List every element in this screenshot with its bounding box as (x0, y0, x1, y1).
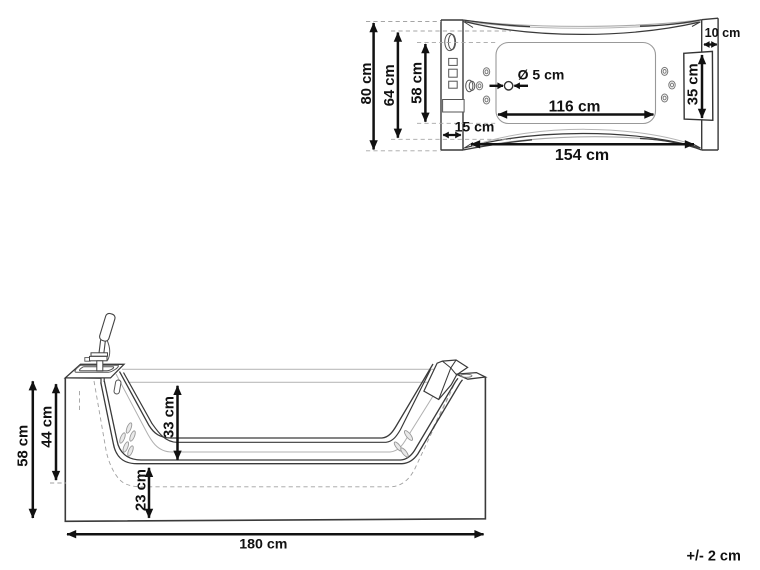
svg-text:44 cm: 44 cm (40, 406, 56, 448)
svg-text:33 cm: 33 cm (162, 396, 178, 438)
svg-text:35 cm: 35 cm (686, 63, 702, 105)
svg-text:154 cm: 154 cm (555, 147, 609, 164)
svg-text:180 cm: 180 cm (239, 537, 287, 553)
svg-text:23 cm: 23 cm (133, 469, 149, 511)
svg-text:64 cm: 64 cm (382, 64, 398, 106)
svg-text:58 cm: 58 cm (15, 425, 31, 467)
svg-text:80 cm: 80 cm (359, 63, 375, 105)
svg-text:Ø 5 cm: Ø 5 cm (518, 66, 565, 82)
svg-text:58 cm: 58 cm (409, 62, 425, 104)
svg-text:10 cm: 10 cm (705, 26, 741, 40)
svg-text:+/- 2 cm: +/- 2 cm (686, 548, 740, 564)
svg-text:116 cm: 116 cm (549, 99, 601, 116)
svg-text:15 cm: 15 cm (455, 119, 495, 135)
